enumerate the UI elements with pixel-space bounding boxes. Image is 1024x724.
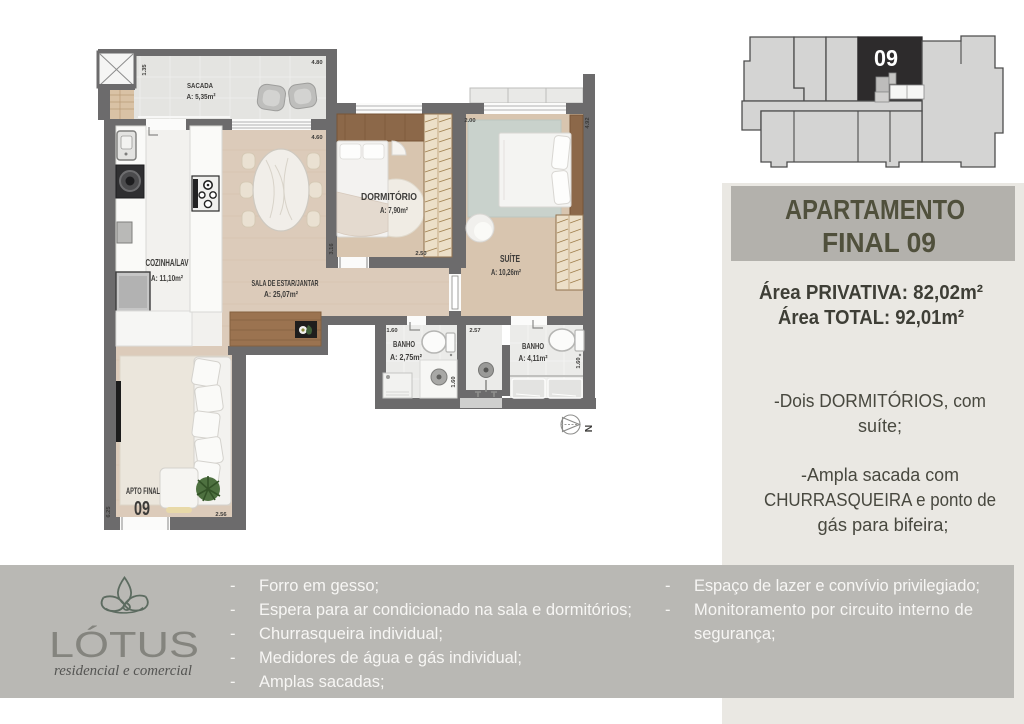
svg-text:Amplas sacadas;: Amplas sacadas; xyxy=(259,673,385,691)
svg-text:09: 09 xyxy=(134,498,150,520)
svg-text:2.00: 2.00 xyxy=(464,118,475,124)
svg-text:1.35: 1.35 xyxy=(142,64,148,76)
svg-text:1.60: 1.60 xyxy=(451,376,457,387)
svg-text:-: - xyxy=(230,601,236,619)
svg-text:SACADA: SACADA xyxy=(187,81,213,90)
svg-text:4.92: 4.92 xyxy=(585,117,591,128)
svg-text:A: 11,10m²: A: 11,10m² xyxy=(151,273,183,283)
svg-text:-Ampla sacada com: -Ampla sacada com xyxy=(801,464,959,485)
svg-text:1.60: 1.60 xyxy=(386,328,397,334)
svg-text:DORMITÓRIO: DORMITÓRIO xyxy=(361,190,417,203)
svg-text:2.50: 2.50 xyxy=(415,251,426,257)
svg-text:COZINHA/LAV: COZINHA/LAV xyxy=(146,258,189,269)
svg-text:-: - xyxy=(230,577,236,595)
svg-text:-Dois DORMITÓRIOS, com: -Dois DORMITÓRIOS, com xyxy=(774,390,986,411)
svg-text:1.60: 1.60 xyxy=(576,357,582,368)
svg-text:2.57: 2.57 xyxy=(469,328,480,334)
svg-text:N: N xyxy=(582,425,594,433)
svg-text:A: 25,07m²: A: 25,07m² xyxy=(264,289,298,299)
svg-text:-: - xyxy=(230,673,236,691)
svg-text:Espera para ar condicionado na: Espera para ar condicionado na sala e do… xyxy=(259,601,632,619)
svg-text:BANHO: BANHO xyxy=(522,341,544,351)
svg-text:-: - xyxy=(230,625,236,643)
svg-text:4.80: 4.80 xyxy=(311,60,322,66)
svg-text:segurança;: segurança; xyxy=(694,625,776,643)
svg-text:Área TOTAL: 92,01m²: Área TOTAL: 92,01m² xyxy=(778,306,964,329)
svg-text:A: 4,11m²: A: 4,11m² xyxy=(519,353,548,363)
svg-text:Área PRIVATIVA: 82,02m²: Área PRIVATIVA: 82,02m² xyxy=(759,281,983,304)
svg-text:A: 10,26m²: A: 10,26m² xyxy=(491,267,521,277)
svg-text:residencial e comercial: residencial e comercial xyxy=(54,663,192,679)
svg-text:SUÍTE: SUÍTE xyxy=(500,252,520,265)
svg-text:-: - xyxy=(665,577,671,595)
svg-text:Monitoramento por circuito int: Monitoramento por circuito interno de xyxy=(694,601,973,619)
svg-text:APTO FINAL: APTO FINAL xyxy=(126,486,160,496)
svg-text:BANHO: BANHO xyxy=(393,339,415,349)
svg-text:FINAL 09: FINAL 09 xyxy=(822,227,936,258)
svg-text:3.16: 3.16 xyxy=(329,243,335,255)
svg-text:Espaço de lazer e convívio pri: Espaço de lazer e convívio privilegiado; xyxy=(694,577,980,595)
svg-text:-: - xyxy=(230,649,236,667)
svg-text:Churrasqueira individual;: Churrasqueira individual; xyxy=(259,625,443,643)
svg-text:09: 09 xyxy=(874,45,898,71)
svg-text:-: - xyxy=(665,601,671,619)
svg-text:CHURRASQUEIRA e ponto de: CHURRASQUEIRA e ponto de xyxy=(764,489,996,510)
svg-text:A: 2,75m²: A: 2,75m² xyxy=(390,352,422,362)
svg-text:4.60: 4.60 xyxy=(311,135,322,141)
svg-text:Forro em gesso;: Forro em gesso; xyxy=(259,577,379,595)
svg-text:APARTAMENTO: APARTAMENTO xyxy=(785,194,965,225)
svg-text:A: 7,90m²: A: 7,90m² xyxy=(380,205,408,215)
svg-text:Medidores de água e gás indivi: Medidores de água e gás individual; xyxy=(259,649,522,667)
svg-text:2.56: 2.56 xyxy=(215,512,227,518)
svg-text:6.25: 6.25 xyxy=(106,506,112,518)
svg-text:LÓTUS: LÓTUS xyxy=(49,624,199,665)
svg-text:A: 5,35m²: A: 5,35m² xyxy=(187,92,216,101)
svg-text:SALA DE ESTAR/JANTAR: SALA DE ESTAR/JANTAR xyxy=(252,278,319,288)
svg-text:suíte;: suíte; xyxy=(858,415,902,436)
svg-text:gás para bifeira;: gás para bifeira; xyxy=(818,514,949,535)
